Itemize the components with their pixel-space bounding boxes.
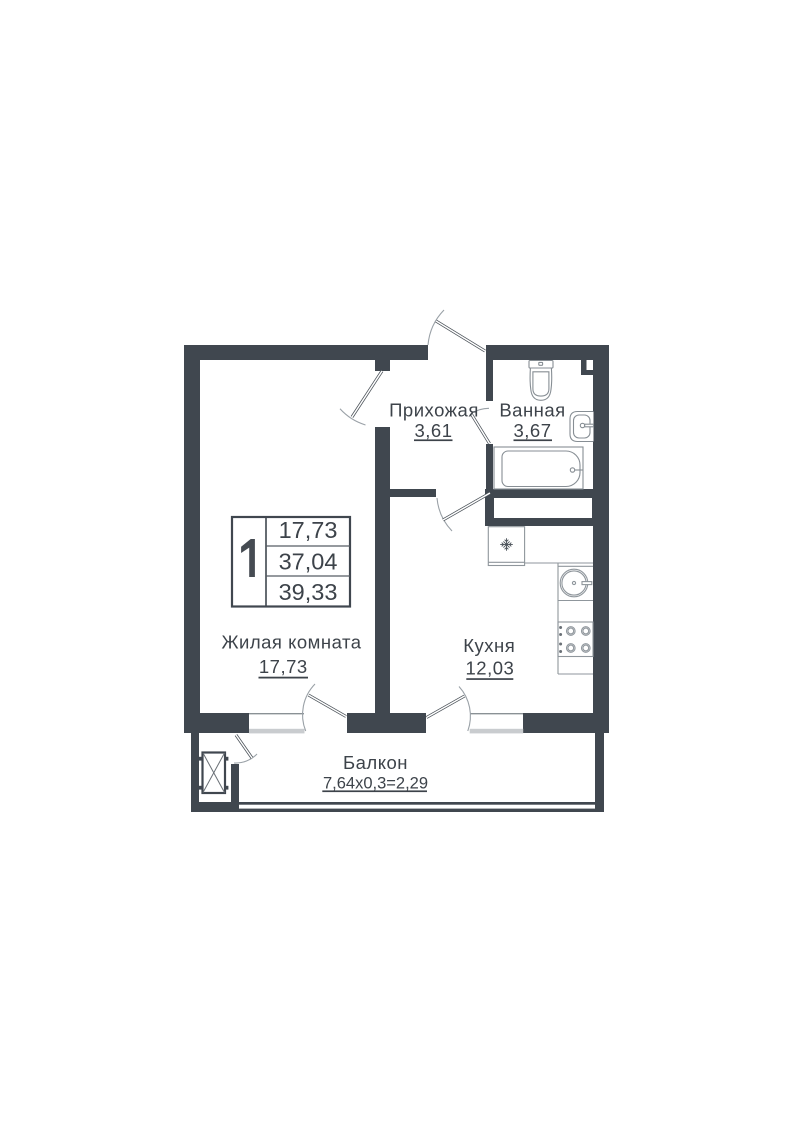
svg-text:3,67: 3,67 — [513, 420, 551, 441]
svg-text:39,33: 39,33 — [279, 579, 338, 605]
svg-text:17,73: 17,73 — [259, 656, 308, 677]
svg-text:17,73: 17,73 — [279, 517, 338, 543]
svg-text:Кухня: Кухня — [463, 635, 515, 656]
svg-text:37,04: 37,04 — [279, 549, 338, 575]
svg-text:12,03: 12,03 — [466, 658, 515, 679]
svg-text:7,64х0,3=2,29: 7,64х0,3=2,29 — [323, 775, 428, 793]
svg-text:Балкон: Балкон — [343, 752, 408, 773]
svg-text:Прихожая: Прихожая — [389, 400, 479, 421]
svg-text:Жилая комната: Жилая комната — [221, 631, 361, 652]
svg-text:3,61: 3,61 — [414, 420, 452, 441]
svg-text:Ванная: Ванная — [499, 400, 565, 421]
